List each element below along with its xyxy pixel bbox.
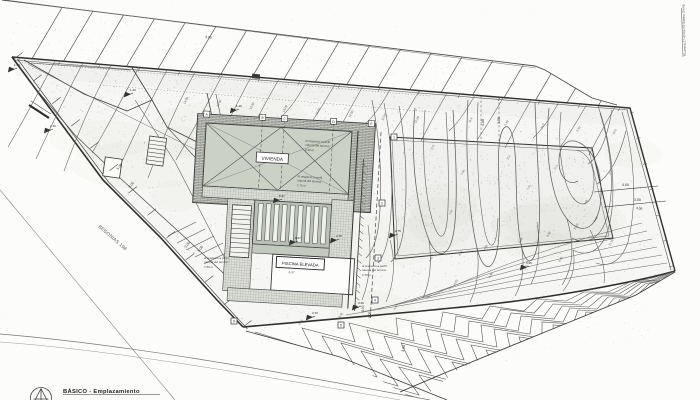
svg-text:3.00: 3.00: [634, 198, 641, 202]
svg-text:1.40: 1.40: [130, 88, 136, 92]
svg-text:6: 6: [233, 319, 235, 323]
svg-text:2,70 m: 2,70 m: [362, 273, 372, 277]
svg-text:7,50 m: 7,50 m: [204, 265, 214, 269]
svg-text:0.95: 0.95: [526, 261, 532, 265]
svg-text:1.40: 1.40: [50, 124, 56, 128]
svg-text:3: 3: [377, 256, 379, 260]
svg-text:natural del terreno: natural del terreno: [204, 260, 229, 264]
svg-text:1: 1: [393, 135, 395, 139]
svg-text:3.70: 3.70: [312, 311, 318, 315]
svg-text:8.97: 8.97: [279, 194, 285, 198]
svg-text:5: 5: [340, 323, 342, 327]
svg-text:-1,07: -1,07: [288, 270, 295, 274]
svg-text:2: 2: [381, 201, 383, 205]
svg-text:1.43: 1.43: [14, 63, 20, 67]
svg-text:0.46: 0.46: [358, 301, 364, 305]
svg-text:BÁSICO - Emplazamiento: BÁSICO - Emplazamiento: [63, 388, 140, 395]
svg-text:2.75: 2.75: [395, 229, 401, 233]
svg-text:natural del terreno: natural del terreno: [362, 268, 387, 272]
svg-text:2.75: 2.75: [336, 234, 342, 238]
svg-text:8.07: 8.07: [295, 236, 301, 240]
svg-text:3.00: 3.00: [361, 305, 365, 312]
svg-text:4.00: 4.00: [622, 183, 629, 187]
svg-text:3.00: 3.00: [497, 117, 501, 124]
svg-text:9,30 m: 9,30 m: [305, 148, 315, 153]
svg-text:7,76 m: 7,76 m: [297, 183, 307, 188]
svg-text:4.00: 4.00: [481, 119, 485, 126]
svg-text:1.40: 1.40: [236, 104, 242, 108]
svg-text:4: 4: [374, 298, 376, 302]
